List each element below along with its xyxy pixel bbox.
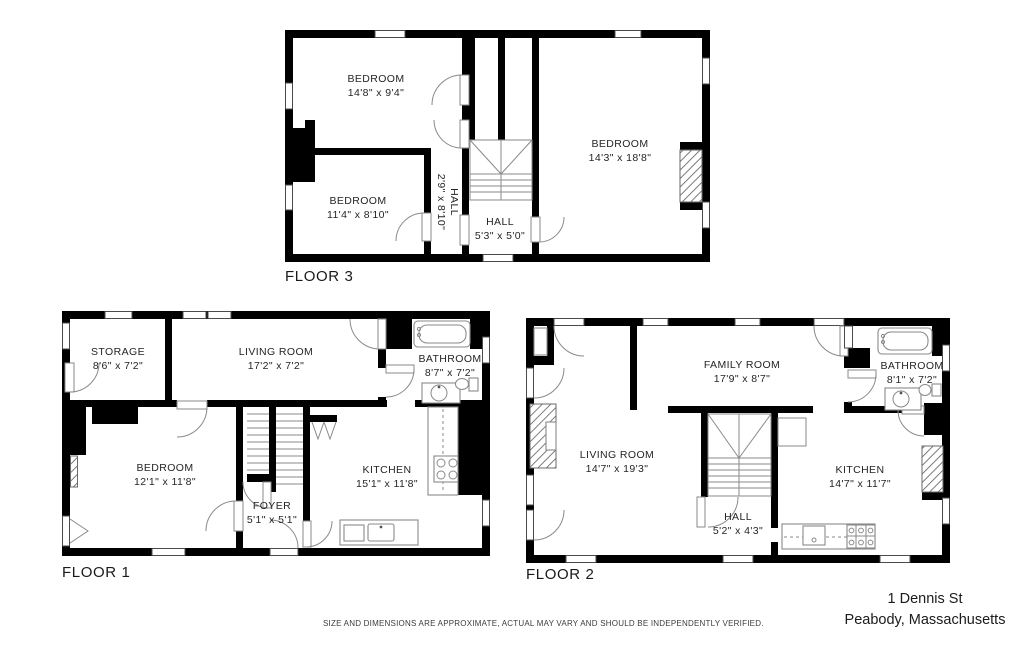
chimney <box>293 120 315 182</box>
floor3-label: FLOOR 3 <box>285 268 353 285</box>
floor3-hall-upper-name: HALL <box>448 188 460 216</box>
floor3-hall-upper-dims: 2'9" x 8'10" <box>435 174 447 231</box>
floor2-bathroom-name: BATHROOM <box>880 360 943 372</box>
floor1-kitchen-dims: 15'1" x 11'8" <box>356 478 418 490</box>
floor2-hall-dims: 5'2" x 4'3" <box>713 525 763 537</box>
staircase <box>470 140 532 200</box>
toilet-bowl <box>456 379 469 390</box>
floor1-bedroom-dims: 12'1" x 11'8" <box>134 476 196 488</box>
floor3-bedroom2-dims: 11'4" x 8'10" <box>327 209 389 221</box>
floor3-bedroom3-name: BEDROOM <box>591 138 648 150</box>
floor3-bedroom3-dims: 14'3" x 18'8" <box>589 152 652 164</box>
floor3-hall-lower-dims: 5'3" x 5'0" <box>475 230 525 242</box>
kitchen-fixtures <box>782 524 875 549</box>
stove <box>434 456 458 482</box>
floor1-storage-dims: 8'6" x 7'2" <box>93 360 143 372</box>
property-address: 1 Dennis St Peabody, Massachusetts <box>820 589 1024 631</box>
floor2-kitchen-name: KITCHEN <box>836 464 885 476</box>
floor2-hall-name: HALL <box>724 511 752 523</box>
floor3-bedroom1-name: BEDROOM <box>347 73 404 85</box>
fireplace-inner <box>546 422 556 450</box>
chimney <box>92 407 138 424</box>
landing-closet <box>778 418 806 446</box>
floor3-hall-lower-name: HALL <box>486 216 514 228</box>
side-entry <box>63 516 70 546</box>
floor2-family-name: FAMILY ROOM <box>704 359 780 371</box>
closet-doors <box>312 422 336 439</box>
floor1-living-name: LIVING ROOM <box>239 346 313 358</box>
address-line2: Peabody, Massachusetts <box>820 610 1024 631</box>
floor1-foyer-dims: 5'1" x 5'1" <box>247 514 297 526</box>
entry-closet <box>534 328 547 355</box>
side-entry-marks <box>70 519 88 543</box>
floor-plan-sheet: BEDROOM 14'8" x 9'4" BEDROOM 11'4" x 8'1… <box>0 0 1024 646</box>
floor1-bedroom-name: BEDROOM <box>136 462 193 474</box>
floor3-bedroom2-name: BEDROOM <box>329 195 386 207</box>
floor2-bathroom-dims: 8'1" x 7'2" <box>887 374 937 386</box>
floor3-plan: BEDROOM 14'8" x 9'4" BEDROOM 11'4" x 8'1… <box>285 30 710 262</box>
appliance <box>344 525 364 541</box>
staircase <box>708 414 771 496</box>
toilet-tank <box>469 378 478 391</box>
pantry-hatch <box>922 446 943 492</box>
vanity <box>422 383 460 403</box>
floor1-kitchen-name: KITCHEN <box>363 464 412 476</box>
radiator-hatch <box>71 456 78 487</box>
floor1-living-dims: 17'2" x 7'2" <box>248 360 305 372</box>
floor2-kitchen-dims: 14'7" x 11'7" <box>829 478 891 490</box>
address-line1: 1 Dennis St <box>820 589 1024 610</box>
floor1-bathroom-name: BATHROOM <box>418 353 481 365</box>
floor2-label: FLOOR 2 <box>526 566 594 583</box>
floor1-label: FLOOR 1 <box>62 564 130 581</box>
floor1-foyer-name: FOYER <box>253 500 291 512</box>
floor1-bathroom-dims: 8'7" x 7'2" <box>425 367 475 379</box>
disclaimer-text: SIZE AND DIMENSIONS ARE APPROXIMATE, ACT… <box>323 619 764 628</box>
floor2-living-dims: 14'7" x 19'3" <box>586 463 649 475</box>
kitchen-fixtures <box>340 407 458 545</box>
floor1-plan: STORAGE 8'6" x 7'2" LIVING ROOM 17'2" x … <box>62 311 490 556</box>
floor2-plan: FAMILY ROOM 17'9" x 8'7" BATHROOM 8'1" x… <box>526 318 950 563</box>
floor1-storage-name: STORAGE <box>91 346 145 358</box>
floor3-bedroom1-dims: 14'8" x 9'4" <box>348 87 405 99</box>
toilet-bowl <box>919 385 931 396</box>
floor2-family-dims: 17'9" x 8'7" <box>714 373 771 385</box>
closet-hatch <box>680 150 702 202</box>
floor2-living-name: LIVING ROOM <box>580 449 654 461</box>
